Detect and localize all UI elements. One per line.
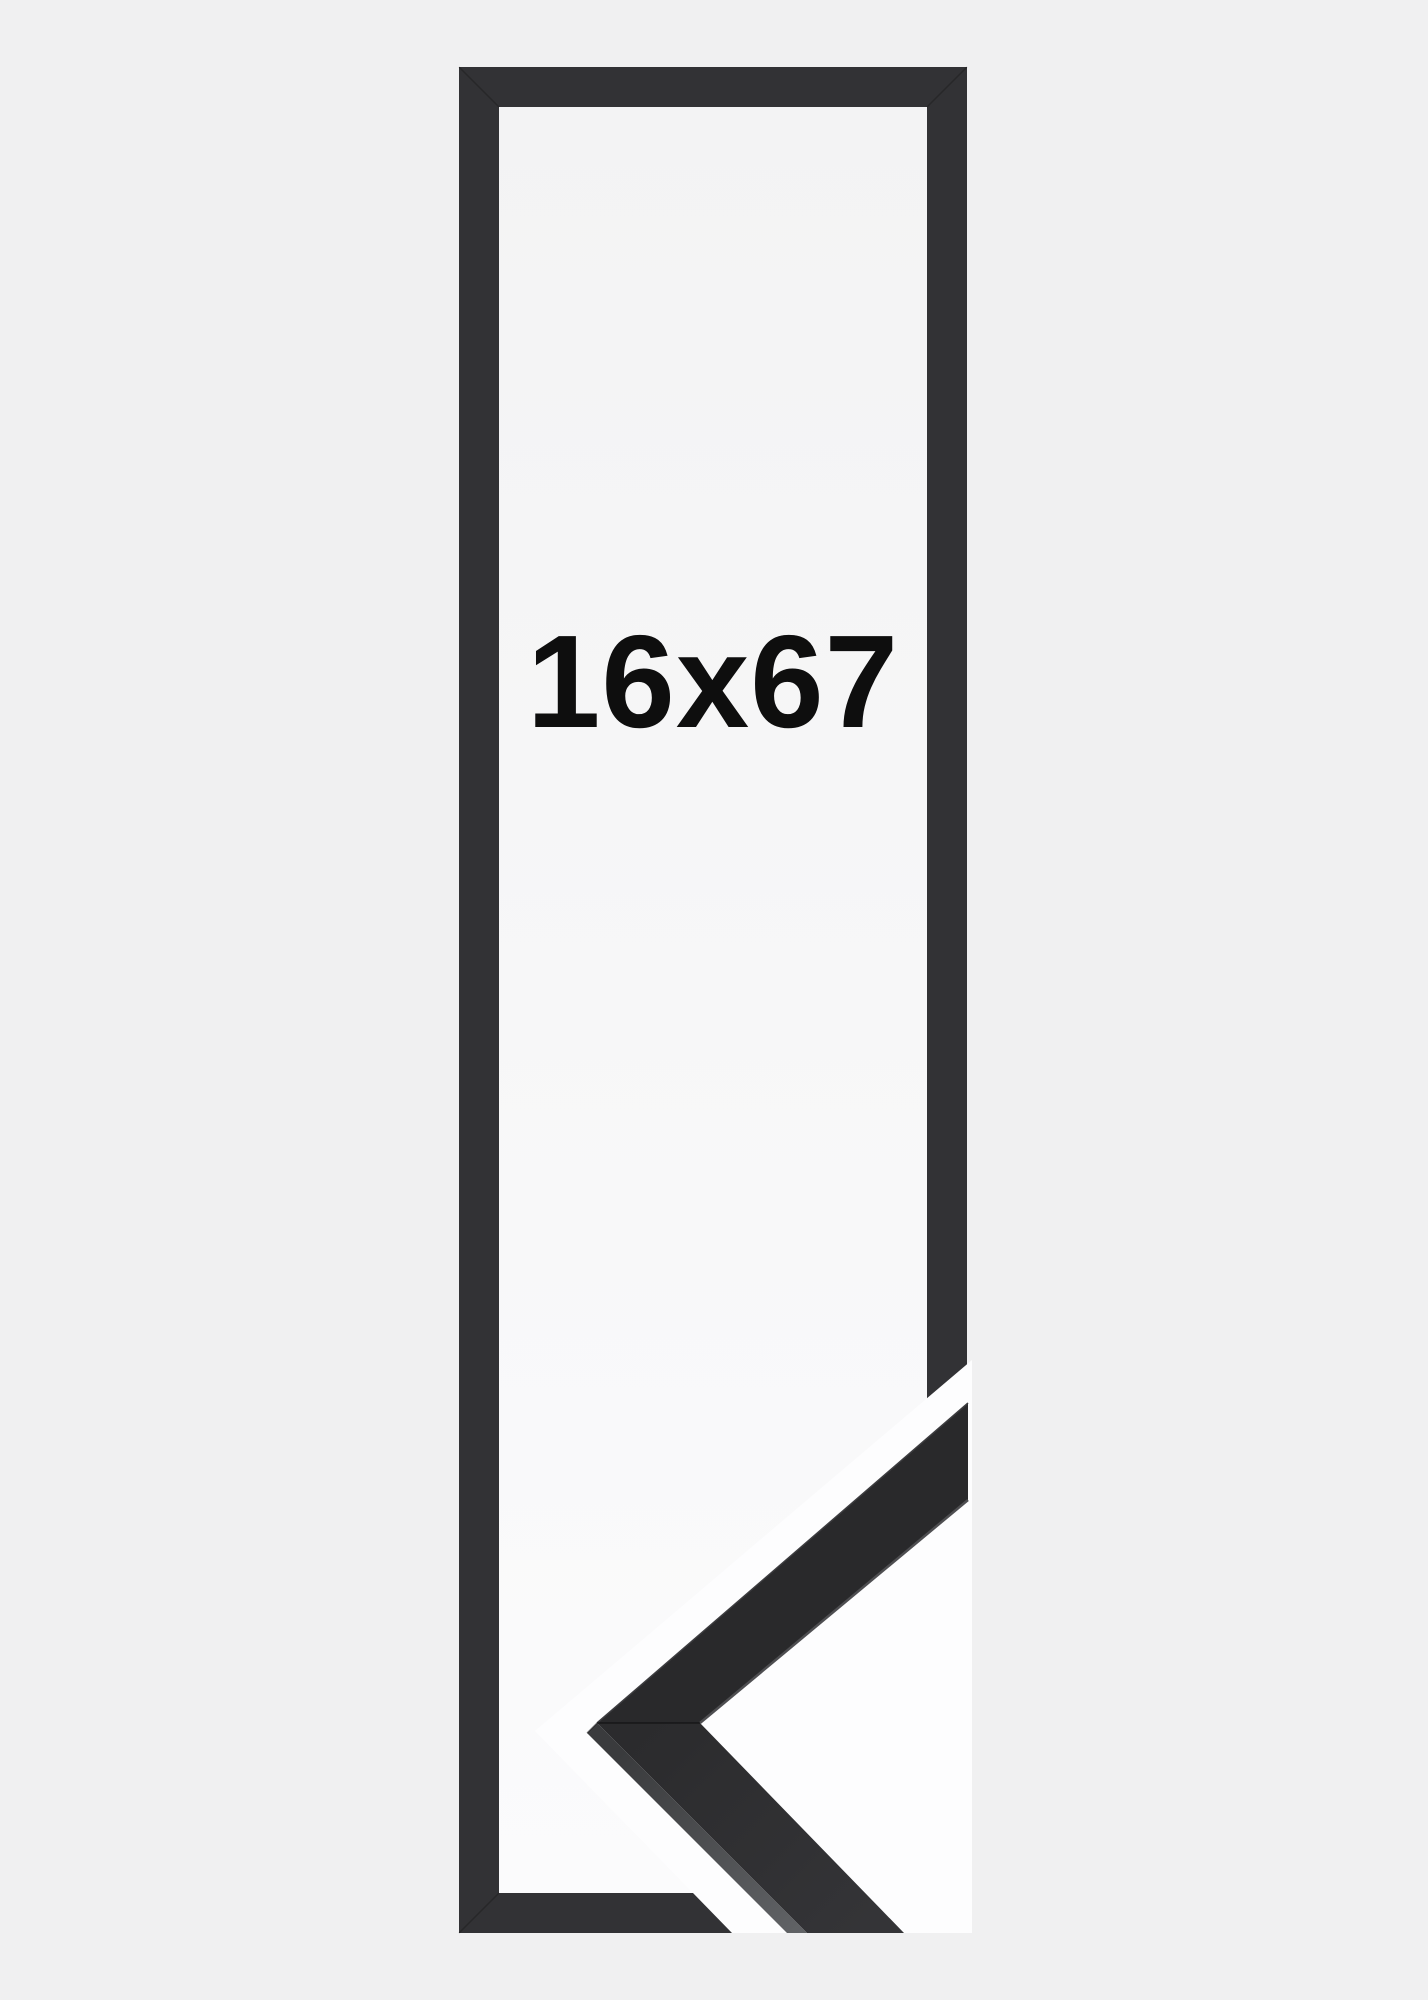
product-image: 16x67 — [0, 0, 1428, 2000]
size-label: 16x67 — [527, 608, 899, 755]
